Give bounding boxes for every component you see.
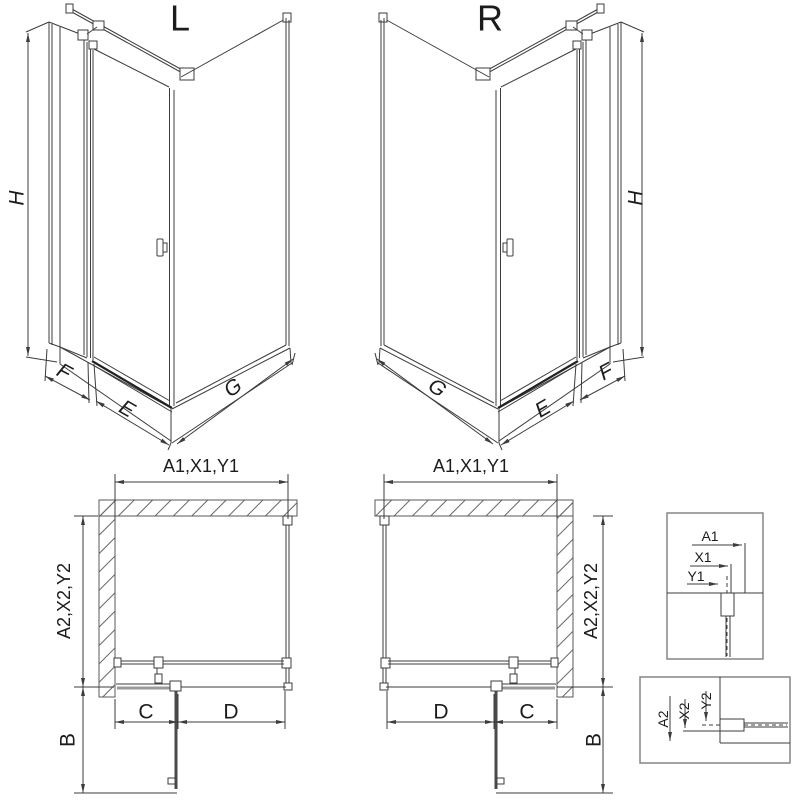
wall-top-hatch	[375, 500, 573, 516]
plan-bar-end-block	[282, 658, 291, 668]
shower-enclosure-dimension-diagram: L R H F E G H F E G A1,X1,Y1 A2,X2,Y2 C …	[0, 0, 800, 800]
plan-view-right-lineart	[375, 474, 573, 789]
plan-bar-wall-block	[114, 658, 121, 667]
wall-profile-section	[721, 593, 734, 616]
panel-g-top-edge	[181, 18, 287, 77]
panel-f-top-edge	[49, 22, 80, 34]
plan-right-side-dimensions	[496, 516, 613, 793]
plan-left-depth-label: A2,X2,Y2	[54, 563, 74, 639]
wall-side-hatch	[557, 500, 573, 697]
door-handle	[157, 239, 163, 256]
door-bottom-edge	[94, 357, 170, 401]
plan-right-depth-label: A2,X2,Y2	[581, 563, 601, 639]
hinge-cap	[89, 41, 97, 49]
door-top-edge	[94, 49, 169, 87]
h-extension-top	[26, 22, 49, 32]
detail-a1-label: A1	[701, 528, 718, 544]
iso-view-left-lineart	[26, 4, 295, 450]
variant-title-right: R	[477, 0, 503, 39]
plan-view-left-lineart	[99, 474, 297, 789]
support-bar-end-cap	[66, 4, 73, 13]
panel-g-end-cap	[283, 13, 291, 22]
plan-left-d-label: D	[223, 701, 238, 724]
plan-bar-tee	[154, 657, 163, 668]
plan-pivot-block	[170, 681, 181, 691]
technical-drawing-page: L R H F E G H F E G A1,X1,Y1 A2,X2,Y2 C …	[0, 0, 800, 800]
detail-y2-label: Y2	[698, 692, 714, 709]
wall-profile-block	[78, 30, 88, 40]
plan-right-d-label: D	[433, 701, 448, 724]
h-label-right: H	[625, 190, 648, 206]
h-extension-bottom	[26, 357, 57, 362]
e-label-right: E	[531, 395, 555, 422]
wall-profile-section	[720, 719, 744, 731]
plan-right-width-label: A1,X1,Y1	[433, 456, 509, 476]
e-label-left: E	[115, 396, 139, 423]
detail-x2-label: X2	[676, 702, 692, 719]
plan-hinge-block	[155, 674, 162, 683]
plan-left-c-label: C	[138, 701, 153, 724]
door-handle-grip	[163, 243, 167, 252]
plan-right-c-label: C	[519, 701, 534, 724]
plan-left-b-label: B	[57, 733, 80, 747]
plan-left-width-label: A1,X1,Y1	[163, 456, 239, 476]
wall-side-hatch	[99, 500, 115, 697]
plan-left-walls	[99, 500, 297, 697]
wall-top-hatch	[99, 500, 297, 516]
variant-title-left: L	[170, 0, 190, 39]
detail-y1-label: Y1	[687, 568, 704, 584]
plan-right-b-label: B	[583, 733, 606, 747]
h-label-left: H	[6, 190, 29, 206]
panel-f-bottom-edge	[60, 347, 87, 358]
plan-right-walls	[375, 500, 573, 697]
detail-x1-label: X1	[694, 549, 711, 565]
detail-a2-label: A2	[655, 710, 671, 727]
plan-left-side-dimensions	[74, 516, 177, 793]
